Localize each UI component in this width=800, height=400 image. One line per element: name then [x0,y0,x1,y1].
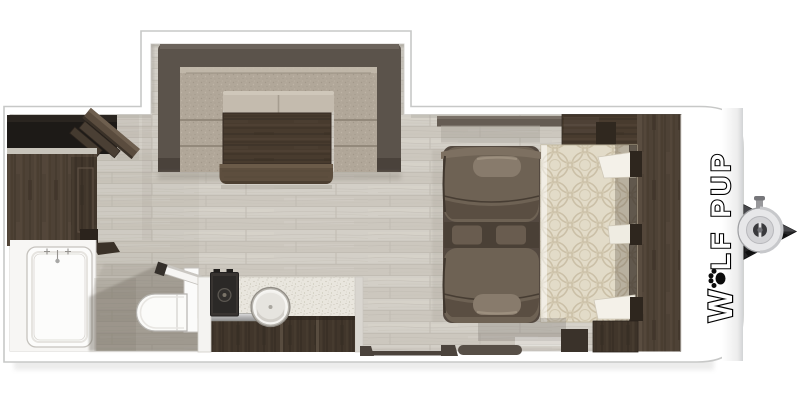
svg-text:W: W [702,289,740,322]
svg-text:LF PUP: LF PUP [706,150,736,270]
